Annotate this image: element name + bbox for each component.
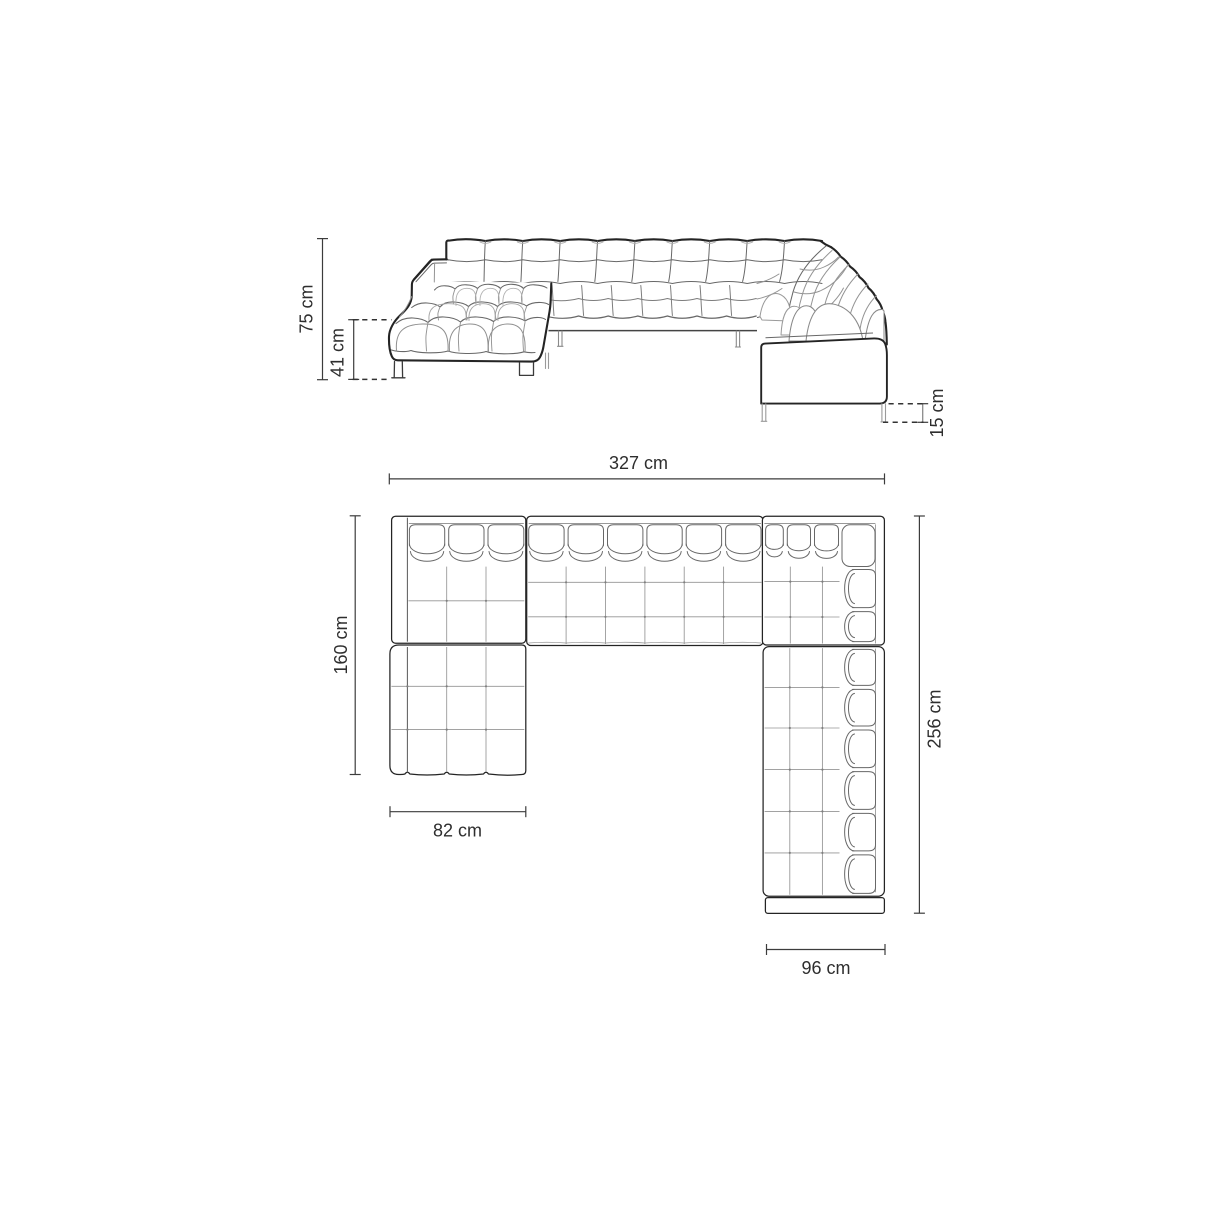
svg-text:41 cm: 41 cm: [327, 328, 347, 377]
svg-text:327 cm: 327 cm: [609, 453, 668, 473]
svg-text:256 cm: 256 cm: [924, 689, 944, 748]
svg-text:15 cm: 15 cm: [927, 388, 947, 437]
svg-text:75 cm: 75 cm: [296, 284, 316, 333]
svg-text:160 cm: 160 cm: [331, 615, 351, 674]
svg-text:96 cm: 96 cm: [801, 958, 850, 978]
svg-text:82 cm: 82 cm: [433, 820, 482, 840]
